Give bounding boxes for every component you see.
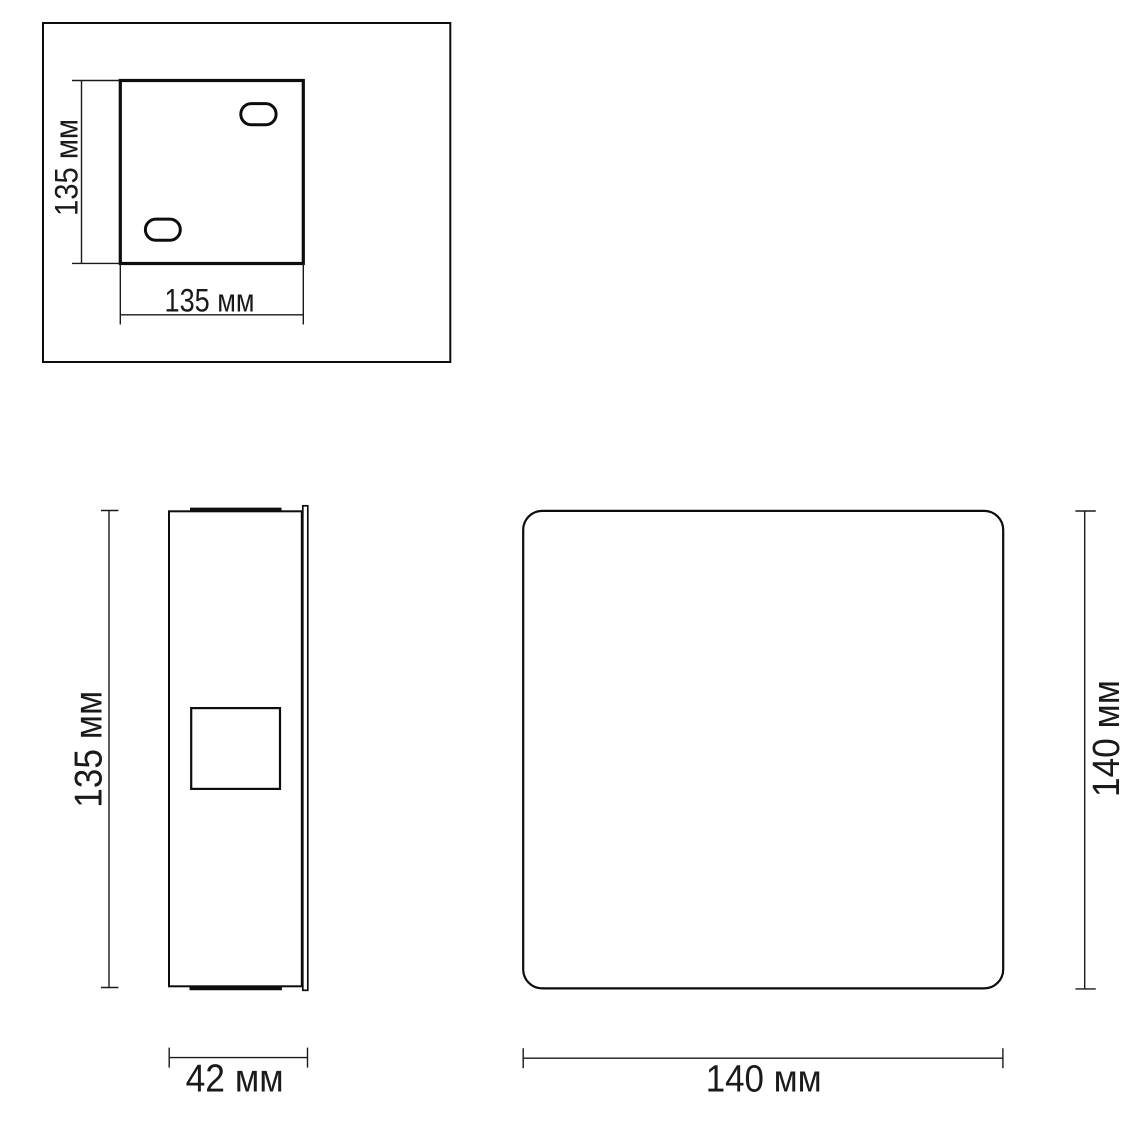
svg-text:135 мм: 135 мм <box>68 691 111 808</box>
svg-text:135 мм: 135 мм <box>49 119 85 216</box>
svg-text:42 мм: 42 мм <box>186 1057 284 1100</box>
svg-text:140 мм: 140 мм <box>706 1058 822 1100</box>
svg-text:135 мм: 135 мм <box>165 283 255 319</box>
svg-text:140 мм: 140 мм <box>1086 680 1128 797</box>
